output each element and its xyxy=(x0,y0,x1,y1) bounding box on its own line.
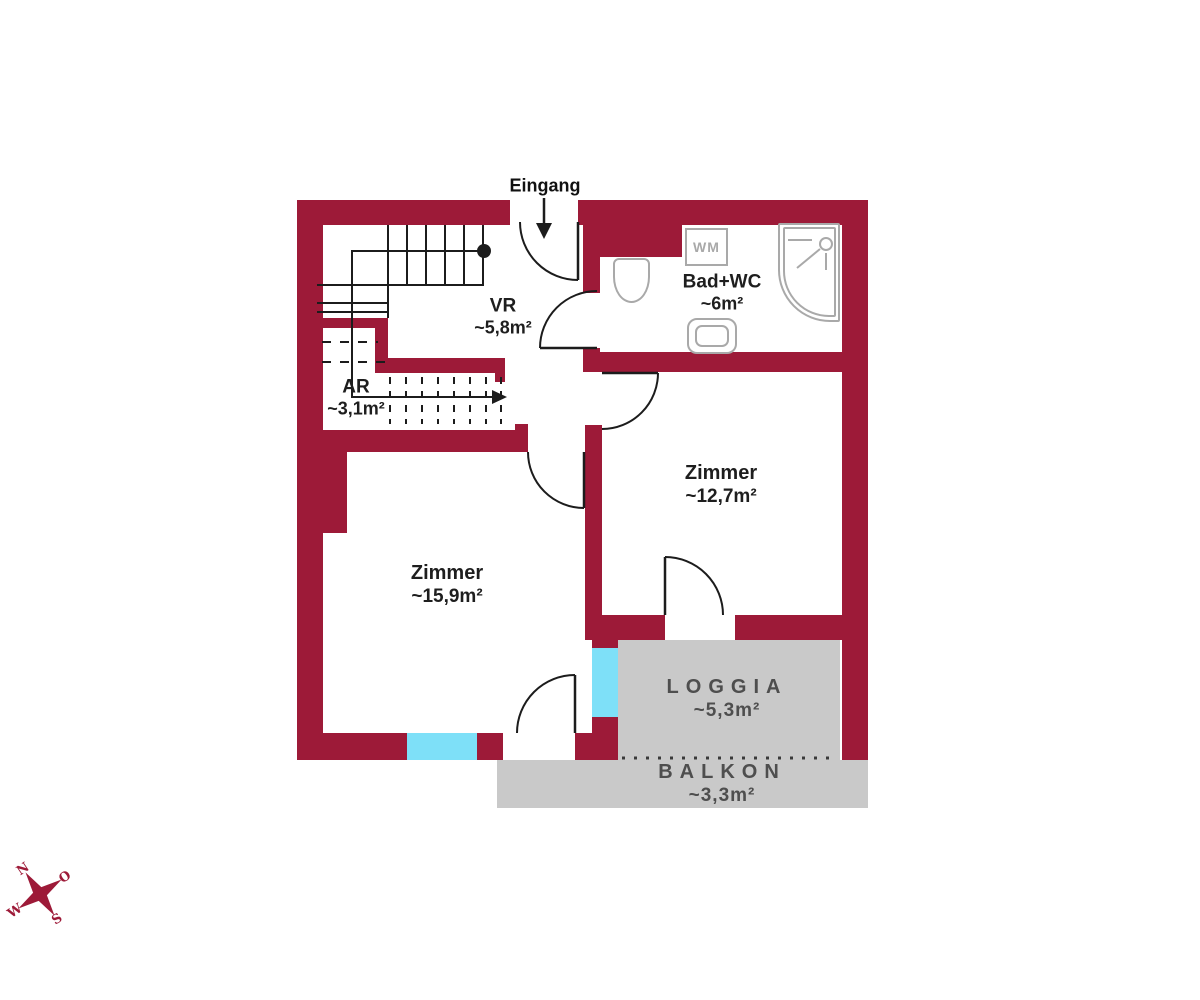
room-area-zimmer159: ~15,9m² xyxy=(411,586,483,609)
door-zimmer159 xyxy=(528,452,584,508)
room-label-loggia: LOGGIA ~5,3m² xyxy=(667,675,788,723)
room-area-bad: ~6m² xyxy=(683,294,762,316)
room-label-zimmer127: Zimmer ~12,7m² xyxy=(685,461,757,509)
stairs-upper xyxy=(317,225,484,318)
room-label-balkon: BALKON ~3,3m² xyxy=(658,760,786,808)
door-zimmer127 xyxy=(602,373,658,429)
room-area-balkon: ~3,3m² xyxy=(658,785,786,808)
room-area-vr: ~5,8m² xyxy=(474,318,532,340)
door-balkon xyxy=(517,675,575,733)
entrance-arrow xyxy=(536,198,552,239)
room-label-zimmer159: Zimmer ~15,9m² xyxy=(411,561,483,609)
room-area-loggia: ~5,3m² xyxy=(667,700,788,723)
room-name-balkon: BALKON xyxy=(658,760,786,784)
room-name-ar: AR xyxy=(327,375,385,398)
room-area-zimmer127: ~12,7m² xyxy=(685,486,757,509)
room-name-bad: Bad+WC xyxy=(683,270,762,293)
entrance-label: Eingang xyxy=(510,176,581,197)
floor-plan: WM xyxy=(0,0,1200,1000)
room-area-ar: ~3,1m² xyxy=(327,399,385,421)
door-entrance xyxy=(520,222,578,280)
room-label-vr: VR ~5,8m² xyxy=(474,294,532,339)
door-bad xyxy=(540,291,597,348)
compass-north-label: N xyxy=(14,860,32,879)
room-name-loggia: LOGGIA xyxy=(667,675,788,699)
shower-head-icon xyxy=(788,238,832,270)
room-label-bad: Bad+WC ~6m² xyxy=(683,270,762,315)
room-name-vr: VR xyxy=(474,294,532,317)
room-label-ar: AR ~3,1m² xyxy=(327,375,385,420)
room-name-zimmer127: Zimmer xyxy=(685,461,757,485)
plan-linework: N O S W xyxy=(0,0,1200,1000)
compass-rose: N O S W xyxy=(4,860,74,928)
room-name-zimmer159: Zimmer xyxy=(411,561,483,585)
compass-south-label: S xyxy=(49,911,65,929)
compass-east-label: O xyxy=(56,868,74,887)
door-loggia xyxy=(665,557,723,615)
